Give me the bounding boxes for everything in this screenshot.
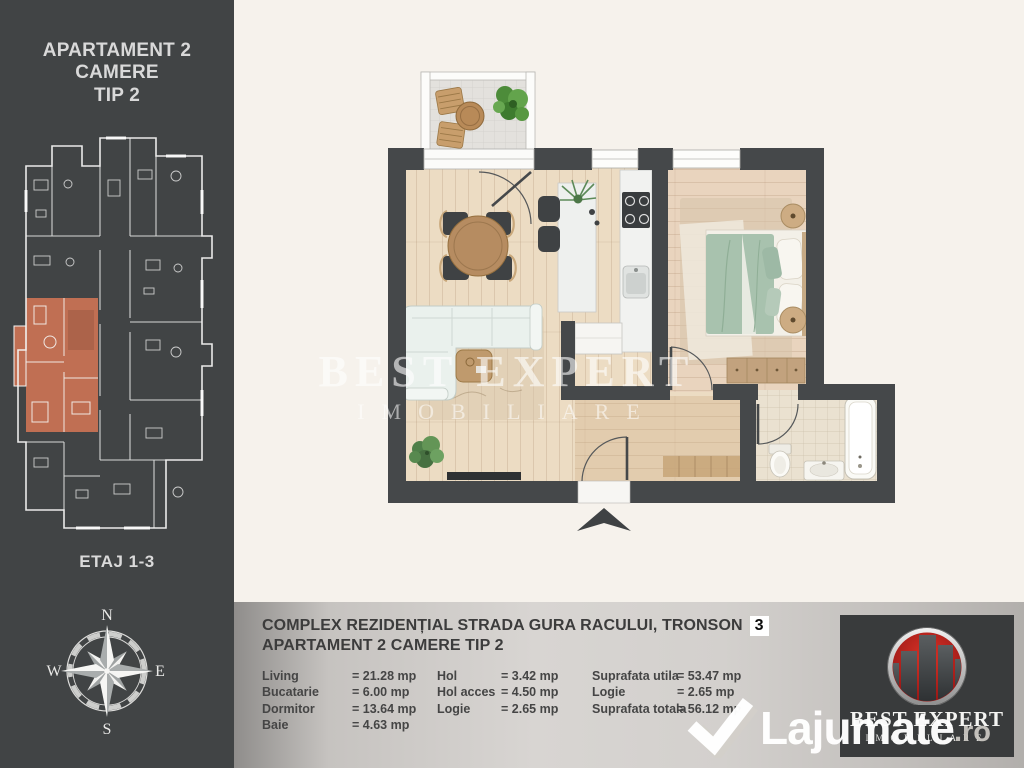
balcony xyxy=(421,72,535,150)
toilet xyxy=(769,444,791,477)
compass-n-label: N xyxy=(101,607,113,624)
compass-w-label: W xyxy=(46,663,62,680)
area-row: Suprafata totala= 56.12 mp xyxy=(592,701,741,717)
entrance-arrow-icon xyxy=(577,508,631,531)
sofa-area xyxy=(402,304,544,420)
kitchen-counter xyxy=(620,170,652,352)
areas-column-3: Suprafata utila= 53.47 mp Logie= 2.65 mp… xyxy=(592,668,741,717)
building-floor-mini-plan xyxy=(6,110,228,544)
wardrobe xyxy=(727,358,805,383)
stove xyxy=(622,192,650,228)
area-row: Baie= 4.63 mp xyxy=(262,717,416,733)
agency-logo: BEST EXPERT IMOBILIARE xyxy=(840,615,1014,757)
dining-table xyxy=(448,216,508,276)
hallway-mat xyxy=(663,456,745,477)
agency-name: BEST EXPERT xyxy=(840,707,1014,732)
balcony-table xyxy=(456,102,484,130)
floor-label: ETAJ 1-3 xyxy=(0,552,234,572)
page-title-line1: APARTAMENT 2 CAMERE xyxy=(0,40,234,85)
area-row: Hol= 3.42 mp xyxy=(437,668,558,684)
sidebar: APARTAMENT 2 CAMERE TIP 2 xyxy=(0,0,234,768)
compass-s-label: S xyxy=(103,721,112,738)
project-title-line2: APARTAMENT 2 CAMERE TIP 2 xyxy=(262,636,769,656)
area-row: Logie= 2.65 mp xyxy=(437,701,558,717)
area-row: Logie= 2.65 mp xyxy=(592,684,741,700)
areas-column-2: Hol= 3.42 mp Hol acces= 4.50 mp Logie= 2… xyxy=(437,668,558,717)
areas-column-1: Living= 21.28 mp Bucatarie= 6.00 mp Dorm… xyxy=(262,668,416,733)
project-title-line1: COMPLEX REZIDENȚIAL STRADA GURA RACULUI,… xyxy=(262,616,769,636)
area-row: Dormitor= 13.64 mp xyxy=(262,701,416,717)
area-row: Bucatarie= 6.00 mp xyxy=(262,684,416,700)
agency-emblem-icon xyxy=(840,615,1014,705)
compass-star xyxy=(61,625,153,717)
info-bar: COMPLEX REZIDENȚIAL STRADA GURA RACULUI,… xyxy=(234,602,1024,768)
page-title-line2: TIP 2 xyxy=(0,85,234,107)
kitchen-sink xyxy=(623,266,649,298)
area-row: Hol acces= 4.50 mp xyxy=(437,684,558,700)
bedroom-furniture xyxy=(679,198,807,383)
bathtub xyxy=(845,397,876,479)
dining-set xyxy=(440,211,516,281)
project-title: COMPLEX REZIDENȚIAL STRADA GURA RACULUI,… xyxy=(262,616,769,656)
area-row: Suprafata utila= 53.47 mp xyxy=(592,668,741,684)
bar-stool xyxy=(538,226,560,252)
tronson-badge: 3 xyxy=(750,616,769,636)
agency-subtitle: IMOBILIARE xyxy=(840,733,1014,743)
area-row: Living= 21.28 mp xyxy=(262,668,416,684)
bar-stool xyxy=(538,196,560,222)
entrance-threshold xyxy=(578,481,630,503)
bathroom-sink xyxy=(804,461,844,480)
compass-e-label: E xyxy=(155,663,165,680)
hall-closet xyxy=(575,323,622,354)
coffee-table xyxy=(456,350,492,382)
apartment-floor-plan xyxy=(370,55,915,540)
tv-console xyxy=(447,472,521,480)
compass-rose-icon: N S W E xyxy=(37,601,177,741)
page-title: APARTAMENT 2 CAMERE TIP 2 xyxy=(0,40,234,107)
